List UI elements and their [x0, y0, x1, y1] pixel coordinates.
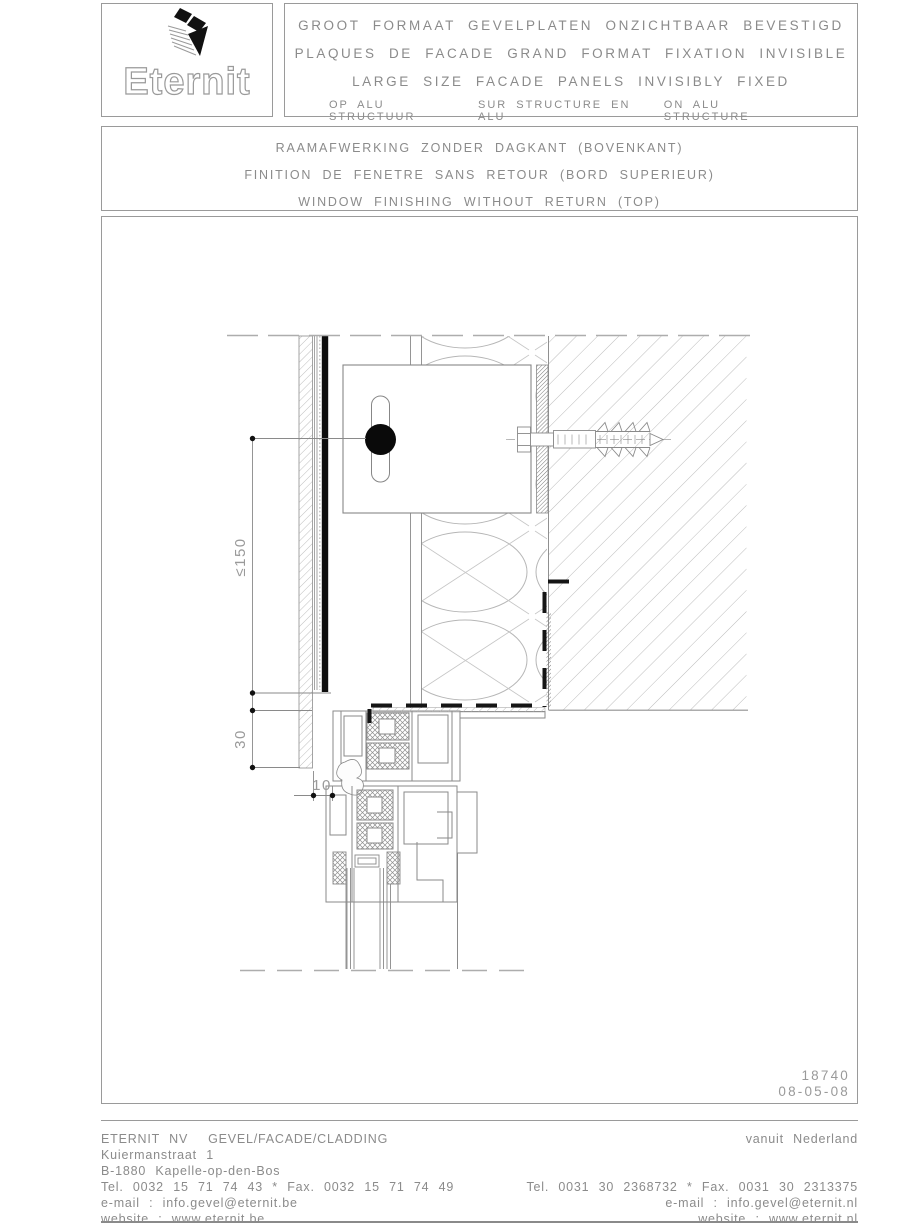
- structure-row: OP ALU STRUCTUUR SUR STRUCTURE EN ALU ON…: [285, 99, 857, 123]
- drawing-date: 08-05-08: [778, 1084, 850, 1100]
- sealant-band: [373, 708, 545, 713]
- structure-label-en: ON ALU STRUCTURE: [664, 99, 813, 123]
- glazing-spacer: [355, 855, 379, 867]
- footer-company: ETERNIT NV: [101, 1132, 188, 1146]
- fixing-rivet: [365, 424, 396, 455]
- eternit-logo: Eternit: [102, 4, 272, 116]
- dim-label-gap: 10: [312, 777, 332, 794]
- drawing-number: 18740: [778, 1068, 850, 1084]
- window-frame: [326, 711, 545, 969]
- title-box: GROOT FORMAAT GEVELPLATEN ONZICHTBAAR BE…: [284, 3, 858, 117]
- facade-panel: [322, 336, 328, 692]
- drawing-sheet: Eternit GROOT FORMAAT GEVELPLATEN ONZICH…: [0, 0, 920, 1226]
- setting-block: [333, 852, 346, 884]
- detail-drawing: ≤150 30 10: [102, 217, 857, 1103]
- title-block-number: 18740 08-05-08: [778, 1068, 850, 1100]
- footer-website-nl: website : www.eternit.nl: [438, 1211, 858, 1226]
- footer-division: GEVEL/FACADE/CLADDING: [208, 1132, 388, 1146]
- footer-region: vanuit Nederland: [438, 1131, 858, 1147]
- footer: ETERNIT NVGEVEL/FACADE/CLADDING Kuierman…: [101, 1131, 858, 1226]
- wall-hatch: [549, 336, 747, 710]
- sheet-rule: [101, 1120, 858, 1121]
- subtitle-line-en: WINDOW FINISHING WITHOUT RETURN (TOP): [102, 189, 857, 216]
- subtitle-line-nl: RAAMAFWERKING ZONDER DAGKANT (BOVENKANT): [102, 135, 857, 162]
- footer-phone-nl: Tel. 0031 30 2368732 * Fax. 0031 30 2313…: [438, 1179, 858, 1195]
- subtitle-box: RAAMAFWERKING ZONDER DAGKANT (BOVENKANT)…: [101, 126, 858, 211]
- bracket: [343, 365, 531, 513]
- eternit-logo-text: Eternit: [123, 61, 250, 103]
- setting-block: [387, 852, 400, 884]
- title-line-nl: GROOT FORMAAT GEVELPLATEN ONZICHTBAAR BE…: [285, 12, 857, 40]
- logo-box: Eternit: [101, 3, 273, 117]
- dim-label-max-height: ≤150: [232, 537, 249, 576]
- subtitle-line-fr: FINITION DE FENETRE SANS RETOUR (BORD SU…: [102, 162, 857, 189]
- dim-label-overlap: 30: [232, 729, 249, 749]
- screw-head: [518, 427, 531, 452]
- title-line-en: LARGE SIZE FACADE PANELS INVISIBLY FIXED: [285, 68, 857, 96]
- structure-label-fr: SUR STRUCTURE EN ALU: [478, 99, 664, 123]
- bottom-rule: [101, 1221, 858, 1223]
- wall: [549, 336, 749, 710]
- footer-email-nl: e-mail : info.gevel@eternit.nl: [438, 1195, 858, 1211]
- anchor-sleeve: [554, 431, 596, 449]
- facade-panel-assembly: [299, 336, 328, 768]
- footer-right-column: vanuit Nederland Tel. 0031 30 2368732 * …: [438, 1131, 858, 1226]
- frame-flange: [460, 712, 545, 719]
- corner-tape: [547, 612, 552, 707]
- drawing-area: ≤150 30 10 18740 08-05-08: [101, 216, 858, 1104]
- eternit-logo-icon: [168, 8, 208, 56]
- structure-label-nl: OP ALU STRUCTUUR: [329, 99, 478, 123]
- substructure-batten: [299, 336, 313, 768]
- title-line-fr: PLAQUES DE FACADE GRAND FORMAT FIXATION …: [285, 40, 857, 68]
